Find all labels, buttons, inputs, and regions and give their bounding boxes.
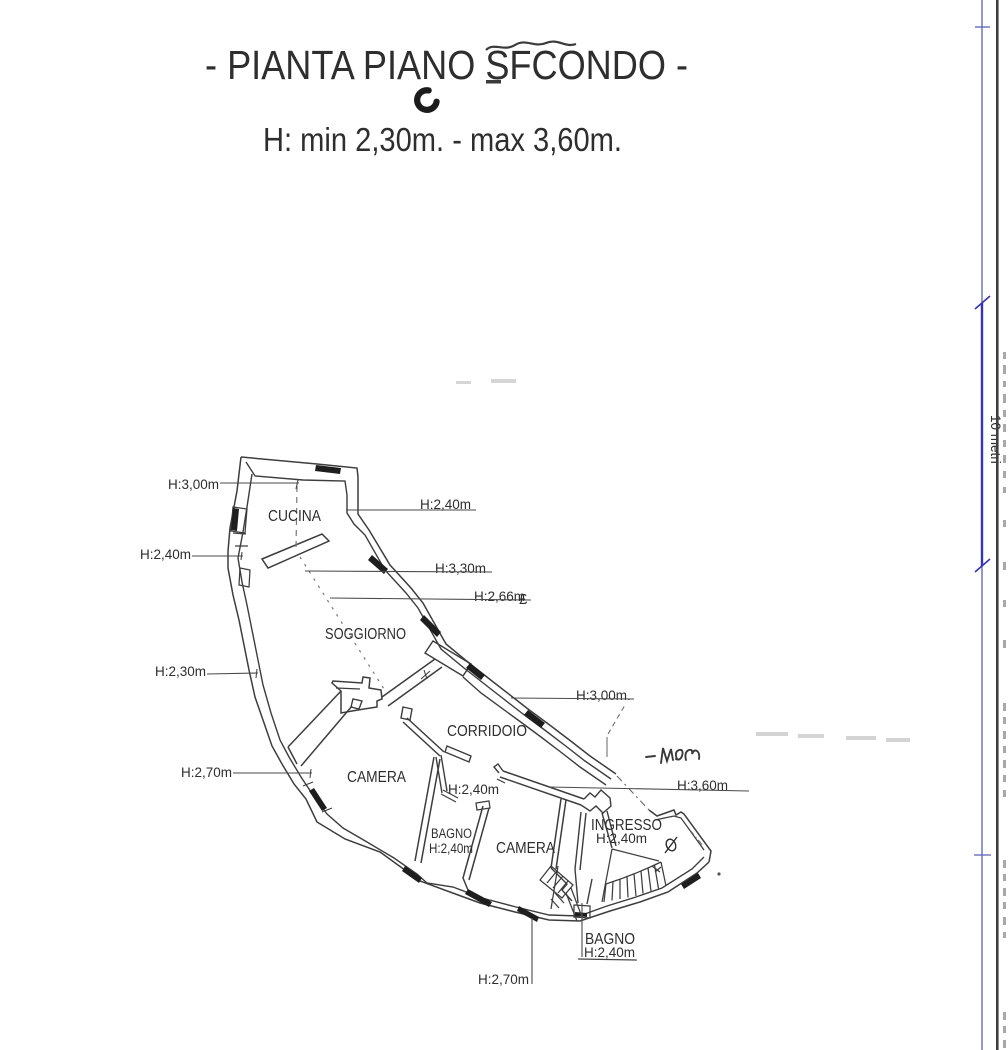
svg-text:CUCINA: CUCINA [268, 508, 321, 525]
svg-text:CAMERA: CAMERA [347, 769, 406, 786]
svg-text:SOGGIORNO: SOGGIORNO [325, 626, 406, 643]
svg-text:CORRIDOIO: CORRIDOIO [447, 723, 527, 740]
svg-text:10 metri: 10 metri [988, 415, 1003, 464]
svg-text:H:2,70m: H:2,70m [181, 765, 232, 780]
svg-text:H:2,40m: H:2,40m [584, 945, 635, 960]
svg-text:H:3,00m: H:3,00m [168, 477, 219, 492]
svg-text:H:3,30m: H:3,30m [435, 561, 486, 576]
svg-text:H:2,40m: H:2,40m [140, 547, 191, 562]
svg-text:H:2,66m: H:2,66m [474, 589, 525, 604]
svg-text:H:2,40m: H:2,40m [596, 831, 647, 846]
svg-text:H:2,30m: H:2,30m [155, 664, 206, 679]
svg-text:- PIANTA PIANO SFCONDO -: - PIANTA PIANO SFCONDO - [205, 42, 688, 88]
svg-text:H:2,40m: H:2,40m [429, 841, 473, 856]
svg-text:H:2,70m: H:2,70m [478, 972, 529, 987]
svg-text:H: min 2,30m. - max 3,60m.: H: min 2,30m. - max 3,60m. [263, 122, 622, 159]
svg-text:BAGNO: BAGNO [431, 826, 472, 841]
svg-text:H:2,40m: H:2,40m [448, 782, 499, 797]
svg-text:£: £ [519, 591, 528, 608]
svg-text:H:3,00m.: H:3,00m. [576, 688, 631, 703]
svg-text:CAMERA: CAMERA [496, 840, 555, 857]
